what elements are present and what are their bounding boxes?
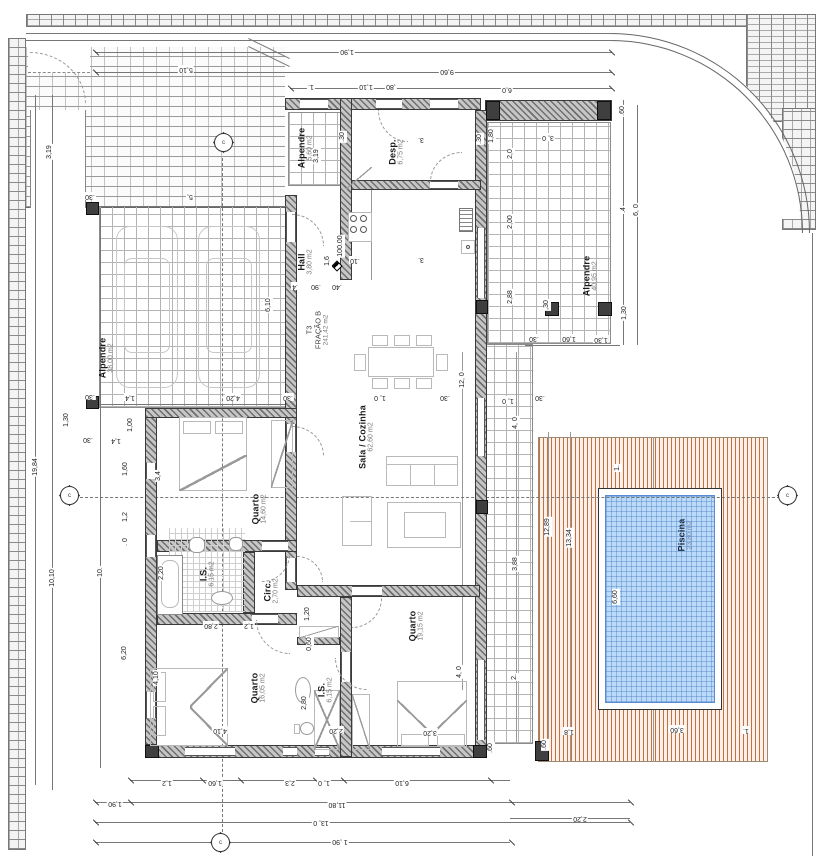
pillow xyxy=(215,421,243,434)
column xyxy=(145,745,159,758)
door-swing xyxy=(297,556,323,582)
dimension-label: .4 xyxy=(620,206,628,214)
dimension-label: 1,90 xyxy=(339,47,355,55)
chair xyxy=(354,354,366,371)
dimension-label: 6,20 xyxy=(121,645,129,661)
datum-symbol: c xyxy=(212,131,236,155)
dimension-label: 4, 0 xyxy=(456,665,464,679)
room-label: Quarto16,05 m2 xyxy=(250,673,267,704)
boundary-wall-left xyxy=(8,38,26,850)
dimension-label: 1,80 xyxy=(488,128,496,144)
room-label: Quarto14,60 m2 xyxy=(251,494,268,525)
dimension-label: 1,60 xyxy=(561,334,577,342)
dimension-label: 2,00 xyxy=(507,214,515,230)
room-label: Circ.2,70 m2 xyxy=(263,578,280,603)
bed-throw xyxy=(179,455,247,491)
dimension-label: 9,60 xyxy=(439,67,455,75)
door-swing xyxy=(430,152,462,182)
dimension-label: .40 xyxy=(331,282,343,290)
chair xyxy=(436,354,448,371)
wardrobe-hatch xyxy=(271,420,293,488)
dimension-label: 3,19 xyxy=(313,148,321,164)
dimension-label: .90 xyxy=(310,282,322,290)
dim-line xyxy=(95,822,630,823)
dimension-label: 1. xyxy=(742,726,750,734)
pool-water xyxy=(605,495,715,703)
dimension-label: 1,00 xyxy=(127,417,135,433)
column xyxy=(476,300,488,314)
window xyxy=(283,747,297,756)
bidet xyxy=(229,537,243,551)
column xyxy=(476,500,488,514)
dimension-label: 6,10 xyxy=(394,778,410,786)
room-label: Piscina23,80 m2 xyxy=(677,519,694,552)
dimension-label: 2,80 xyxy=(203,621,219,629)
chair xyxy=(394,378,410,389)
pillow xyxy=(153,706,166,736)
door-opening xyxy=(376,99,402,109)
dimension-label: .60 xyxy=(541,739,549,751)
dimension-label: 1,4 xyxy=(110,436,122,444)
dimension-label: 0,60 xyxy=(306,636,314,652)
dimension-label: 6, 0 xyxy=(633,203,641,217)
dim-line xyxy=(510,818,630,819)
street-line-1 xyxy=(26,33,612,34)
column xyxy=(597,101,611,120)
floor-plan: 100.00 1,909,601.1,10,806,05,10.305,3,19… xyxy=(0,0,816,856)
dimension-label: 1,30 xyxy=(63,412,71,428)
dimension-label: 1, 0 xyxy=(373,393,387,401)
door-opening xyxy=(262,541,288,551)
dimension-label: 1,4 xyxy=(124,393,136,401)
dimension-label: 11,80 xyxy=(328,800,347,808)
room-label: Alpendre5,60 m2 xyxy=(297,128,314,169)
column xyxy=(86,202,99,215)
dimension-label: 10. xyxy=(97,566,105,578)
dimension-label: .10 xyxy=(349,256,361,264)
dimension-label: .30 xyxy=(339,131,347,143)
car-cabin xyxy=(206,258,252,353)
dimension-label: .30 xyxy=(476,133,484,145)
dimension-label: 12,89 xyxy=(544,517,552,537)
dimension-label: 6,60 xyxy=(612,589,620,605)
dim-line xyxy=(462,352,463,690)
room-label: Hall3,80 m2 xyxy=(297,249,314,274)
dimension-label: 1,6 xyxy=(324,255,332,267)
wall-bath2-partition xyxy=(297,637,340,645)
chair xyxy=(394,335,410,346)
sofa-seat-line xyxy=(410,464,411,486)
room-label: Sala / Cozinha62,60 m2 xyxy=(358,405,375,469)
dimension-label: ,30 xyxy=(543,299,551,311)
dimension-label: 1,20 xyxy=(304,606,312,622)
dim-line xyxy=(548,432,549,762)
dimension-label: 2,3 xyxy=(284,778,296,786)
street-line-2 xyxy=(26,40,612,41)
dimension-label: 19,84 xyxy=(32,457,40,477)
dimension-label: 10,10 xyxy=(49,568,57,588)
dimension-label: .30 xyxy=(82,435,94,443)
entrance-walkway xyxy=(30,110,86,208)
window xyxy=(185,747,235,756)
dimension-label: 2,0 xyxy=(507,148,515,160)
dimension-label: .30 xyxy=(528,334,540,342)
room-label: Desp.6,75 m2 xyxy=(388,139,405,165)
dimension-label: 3,19 xyxy=(46,144,54,160)
east-walkway-tiles xyxy=(481,344,533,744)
boundary-wall-top xyxy=(26,14,756,27)
dim-line xyxy=(35,95,36,785)
dimension-label: 1. xyxy=(614,464,622,472)
window xyxy=(146,535,156,557)
coffee-table xyxy=(404,512,446,538)
dimension-label: ,80 xyxy=(385,82,397,90)
room-label: Alpendre38,00 m2 xyxy=(98,338,115,379)
pillow xyxy=(183,421,211,434)
dimension-label: 1, 0 xyxy=(501,396,515,404)
sofa xyxy=(386,456,458,486)
fraction-label: T3FRAÇÃO B241,42 m2 xyxy=(305,311,330,349)
dimension-label: 6,0 xyxy=(501,85,513,93)
dimension-label: 3,60 xyxy=(669,725,685,733)
door-swing xyxy=(292,214,324,246)
dimension-label: 3,88 xyxy=(512,556,520,572)
level-value: 100.00 xyxy=(337,234,345,257)
carport-beam-edge xyxy=(99,206,287,207)
column xyxy=(486,101,500,120)
door-swing xyxy=(292,426,324,456)
toilet xyxy=(300,722,314,735)
dimension-label: 1 ,90 xyxy=(331,837,349,845)
window xyxy=(300,99,328,109)
dimension-label: 1,10 xyxy=(358,82,374,90)
dimension-label: 2,20 xyxy=(328,726,344,734)
wardrobe-hatch xyxy=(352,694,370,750)
pillow xyxy=(437,734,465,746)
room-label: I.S.6,15 m2 xyxy=(317,677,334,702)
dining-table xyxy=(368,347,434,377)
plot-boundary-right xyxy=(812,233,813,856)
door-opening xyxy=(430,181,458,189)
dimension-label: 6,10 xyxy=(265,297,273,313)
car-cabin xyxy=(124,258,170,353)
stove-burner xyxy=(350,215,357,222)
dim-line xyxy=(95,802,630,803)
dimension-label: .4 xyxy=(291,282,299,290)
stove-burner xyxy=(360,226,367,233)
linen-closet-hatch xyxy=(299,626,339,638)
dimension-label: 4,20 xyxy=(225,393,241,401)
chair xyxy=(416,378,432,389)
dim-line xyxy=(637,105,638,345)
dimension-label: 5, xyxy=(186,192,194,200)
dimension-label: 1,2 xyxy=(243,621,255,629)
sink-drain xyxy=(466,245,470,249)
dim-line xyxy=(95,842,510,843)
dimension-label: 12, 0 xyxy=(459,371,467,389)
wall-east-porch-north xyxy=(485,100,612,121)
dimension-label: 4,10 xyxy=(153,670,161,686)
corner-shelf xyxy=(346,167,372,189)
section-line-horizontal xyxy=(80,497,790,498)
dimension-label: .30 xyxy=(84,192,96,200)
chair xyxy=(372,378,388,389)
dimension-label: 3. xyxy=(417,255,425,263)
column xyxy=(473,745,487,758)
bed-throw xyxy=(190,668,228,707)
dimension-label: 3. xyxy=(417,135,425,143)
datum-symbol: c xyxy=(58,484,82,508)
dimension-label: 4,10 xyxy=(212,726,228,734)
dimension-label: 2,88 xyxy=(507,289,515,305)
chair xyxy=(372,335,388,346)
dimension-label: 3,4 xyxy=(155,470,163,482)
datum-symbol: c xyxy=(209,831,233,855)
dimension-label: 1,90 xyxy=(107,799,123,807)
dim-line xyxy=(52,95,53,790)
dimension-label: 1,60 xyxy=(207,778,223,786)
column xyxy=(598,302,612,316)
room-label: Alpendre40,95 m2 xyxy=(582,256,599,297)
dimension-label: 5,10 xyxy=(178,65,194,73)
dimension-label: . 0 xyxy=(122,537,130,547)
dimension-label: 2,80 xyxy=(301,695,309,711)
dimension-label: 3, 0 xyxy=(541,133,555,141)
stove-burner xyxy=(360,215,367,222)
room-label: Quarto19,15 m2 xyxy=(408,611,425,642)
datum-symbol: c xyxy=(776,484,800,508)
wall-sala-bed3 xyxy=(297,585,480,597)
dim-line xyxy=(525,345,620,346)
dimension-label: 1,30 xyxy=(593,335,609,343)
dim-line xyxy=(100,208,101,768)
dimension-label: 2,20 xyxy=(572,814,588,822)
dimension-label: 13,34 xyxy=(566,528,574,548)
dimension-label: 13, 0 xyxy=(312,818,330,826)
window xyxy=(430,99,458,109)
door-swing xyxy=(378,110,408,142)
dimension-label: 4, 0 xyxy=(512,416,520,430)
dimension-label: 3,20 xyxy=(422,728,438,736)
dimension-label: .60 xyxy=(619,105,627,117)
dimension-label: .30 xyxy=(439,393,451,401)
toilet xyxy=(189,537,205,553)
chair xyxy=(416,335,432,346)
room-label: I.S.6,15 m2 xyxy=(199,561,216,586)
door-swing xyxy=(352,598,382,628)
dimension-label: .30 xyxy=(534,393,546,401)
dim-line xyxy=(95,72,612,73)
dimension-label: 2. xyxy=(511,673,519,681)
window xyxy=(477,228,485,298)
dimension-label: .60 xyxy=(487,742,495,754)
dim-line xyxy=(570,432,571,762)
sink xyxy=(211,591,233,605)
dimension-label: 1. xyxy=(307,82,315,90)
dimension-label: 2,20 xyxy=(158,565,166,581)
door-opening xyxy=(352,586,382,596)
dimension-label: 1,2 xyxy=(122,511,130,523)
sofa-back-line xyxy=(386,464,458,465)
sliding-door xyxy=(477,398,485,456)
kitchen-appliance xyxy=(459,208,473,232)
dimension-label: 1,2 xyxy=(161,778,173,786)
dimension-label: 1,30 xyxy=(621,305,629,321)
sofa-seat-line xyxy=(350,521,372,522)
window xyxy=(382,747,440,756)
dim-line xyxy=(86,404,291,405)
dimension-label: 1,8 xyxy=(563,727,575,735)
stove-burner xyxy=(350,226,357,233)
sliding-door xyxy=(477,660,485,740)
dimension-label: .30 xyxy=(84,392,96,400)
dim-line xyxy=(516,352,517,744)
dimension-label: 1, 0 xyxy=(317,778,331,786)
dimension-label: .30 xyxy=(282,393,294,401)
door-swing xyxy=(256,620,290,654)
dim-line xyxy=(290,88,612,89)
sofa-seat-line xyxy=(434,464,435,486)
dimension-label: 1,60 xyxy=(122,461,130,477)
